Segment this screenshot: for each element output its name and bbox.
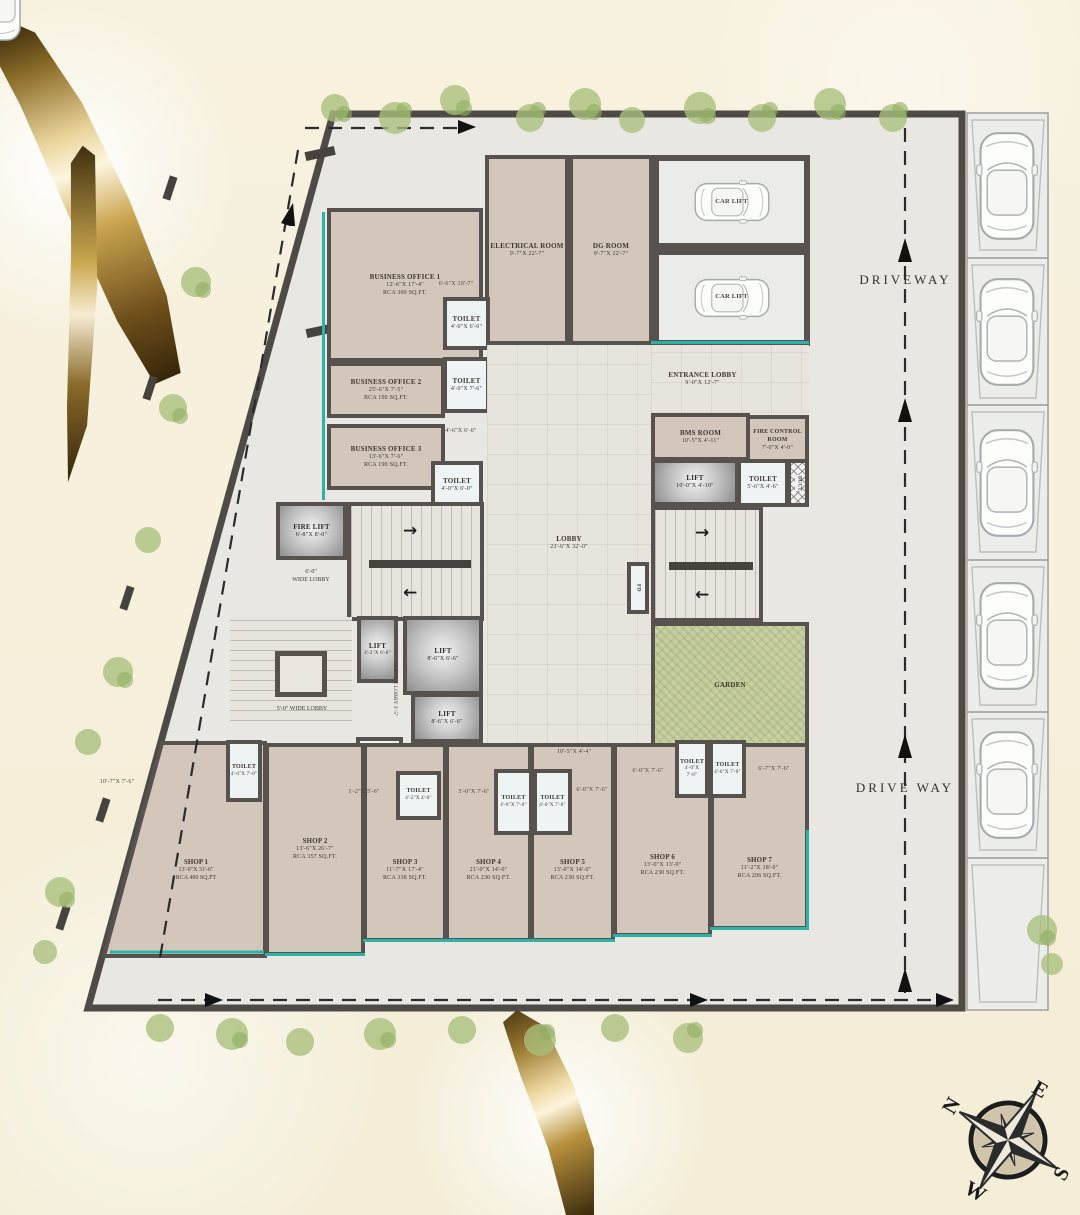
dim-label: 6'-0"X 7'-6" [622,768,674,774]
room-label: DG ROOM [593,242,629,251]
room-label: FIRE LIFT [293,523,330,532]
shop-name: SHOP 1 [140,858,252,867]
room-area: RCA 190 SQ.FT. [364,462,408,470]
room-shop-toilet-3: TOILET 4'-0"X 7'-0" [494,769,533,835]
wide-lobby-5-label: 5'-0" WIDE LOBBY [252,706,352,712]
stair-down-arrow: ← [695,584,709,606]
stair-landing-bar [669,562,753,570]
room-area: RCA 300 SQ.FT. [383,290,427,298]
shop-name: SHOP 2 [302,837,327,846]
room-label: BUSINESS OFFICE 3 [351,445,422,454]
room-dim: 9'-0"X 12'-7" [685,380,720,388]
room-dim: 13'-6"X 7'-6" [369,454,404,462]
room-label: BUSINESS OFFICE 2 [351,378,422,387]
room-label: LIFT [686,474,703,483]
storefront-s3 [363,939,447,942]
room-label: TOILET [406,788,430,796]
glazing-entrance-top [651,341,809,344]
shop-dim: 13'-6"X 26'-7" [296,846,334,854]
dim-label: 1'-2"X 5'-6" [336,789,392,795]
dim-label: 5'-0"X 7'-6" [448,789,500,795]
room-lift-right: LIFT 10'-0"X 4'-10" [651,459,739,506]
dim-label: 6'-7"X 7'-6" [748,766,800,772]
room-shop-toilet-2: TOILET 4'-2"X 4'-0" [396,771,441,820]
driveway-label-bottom: DRIVE WAY [849,780,961,796]
room-dim: 10'-0"X 4'-10" [676,483,714,491]
room-dim: 4'-0"X 7'-6" [451,386,482,394]
room-label: LIFT [369,642,386,651]
storefront-s5 [530,939,615,942]
room-dim: 4'-2"X 4'-0" [405,796,431,803]
room-dim: 4'-0"X 6'-0" [451,324,482,332]
room-label: LIFT [438,710,455,719]
room-shop-toilet-4: TOILET 4'-0"X 7'-0" [533,769,572,835]
shop-area: RCA 400 SQ.FT [140,875,252,883]
shop-dim: 11'-7"X 17'-4" [386,867,423,875]
wide-lobby-6-line1: 6'-0" [305,569,317,575]
shop-name: SHOP 3 [392,858,417,867]
room-dim: 4'-0"X 7'-0" [539,803,565,810]
room-dim: 9'-7"X 22'-7" [594,251,629,259]
shop-area: RCA 230 SQ.FT. [466,875,510,883]
room-label: TOILET [501,795,525,803]
stair-landing-bar [369,560,471,568]
room-dim: 8'-6"X 6'-6" [431,719,462,727]
shop-name: SHOP 7 [747,856,772,865]
room-dim: 4'-0"X 7'-0" [500,803,526,810]
wide-lobby-6-line2: WIDE LOBBY [292,577,330,583]
room-label: TOILET [443,477,471,486]
room-dim: 4'-0"X 6'-0" [441,486,472,494]
dim-label: 10'-5"X 4'-4" [543,749,605,755]
room-bms: BMS ROOM 10'-5"X 4'-11" [651,413,750,461]
parking-stalls [967,113,1048,1010]
room-fd-shaft: FD [627,562,649,614]
room-dim: 9'-7"X 22'-7" [510,251,545,259]
dim-label: 6'-6"X 10'-7" [425,281,487,287]
room-dim: 10'-5"X 4'-11" [682,438,719,446]
room-label: TOILET [232,764,256,772]
room-lift-b: LIFT 8'-6"X 6'-6" [411,693,483,743]
room-label: ENTRANCE LOBBY [668,371,736,380]
room-label: TOILET [749,475,777,484]
room-label: DUCT [795,475,802,492]
service-lobby-label: SERVICE LOBBY 3'-5" [392,642,398,737]
dim-label: 10'-7"X 7'-6" [86,779,148,785]
room-dim: 23'-6"X 32'-0" [550,544,588,552]
dim-label: 6'-0"X 7'-6" [566,787,618,793]
room-entrance-lobby: ENTRANCE LOBBY 9'-0"X 12'-7" [651,345,809,413]
room-car-lift-2: CAR LIFT [653,249,810,346]
room-duct: DUCT [787,459,809,507]
room-label: LIFT [434,647,451,656]
room-label: LOBBY [556,535,582,544]
room-fire-lift: FIRE LIFT 6'-8"X 8'-0" [276,502,347,560]
room-garden: GARDEN [651,622,809,750]
glazing-office-left [322,212,325,500]
wide-lobby-6-label: 6'-0" WIDE LOBBY [278,568,344,585]
staircase-right: → ← [651,506,763,622]
room-toilet-office2: TOILET 4'-0"X 7'-6" [443,357,490,413]
room-business-office-3: BUSINESS OFFICE 3 13'-6"X 7'-6" RCA 190 … [327,424,445,490]
room-dim: 4'-6"X 7'-0" [714,770,740,777]
room-dim: 4'-0"X 7'-0" [231,772,257,779]
room-lift-a: LIFT 8'-6"X 6'-6" [403,616,483,695]
room-dim: 12'-6"X 17'-4" [386,282,424,290]
room-label: CAR LIFT [715,198,747,206]
room-business-office-2: BUSINESS OFFICE 2 25'-6"X 7'-5" RCA 190 … [327,362,445,418]
compass-s: S [1048,1162,1075,1184]
room-toilet-office1: TOILET 4'-0"X 6'-0" [443,297,490,350]
dim-label: 4'-6"X 6'-0" [432,428,490,434]
room-label: CAR LIFT [715,293,747,301]
room-dim: 5'-6"X 4'-6" [747,484,778,492]
room-dim: 6'-8"X 8'-0" [296,532,327,540]
storefront-s2 [265,953,365,956]
storefront-s7 [710,927,809,930]
room-label: TOILET [540,795,564,803]
shop-dim: 13'-0"X 14'-0" [554,867,592,875]
room-label: FIRE CONTROL ROOM [750,429,805,445]
room-label: FD [634,584,641,592]
stair-up-arrow: → [695,522,709,544]
shop-area: RCA 338 SQ.FT. [383,875,427,883]
compass-rose: N E S W [932,1064,1080,1215]
room-label: ELECTRICAL ROOM [490,242,563,251]
room-car-lift-1: CAR LIFT [653,155,810,249]
room-label: TOILET [453,315,481,324]
room-area: RCA 190 SQ.FT. [364,395,408,403]
shop-dim: 13'-9"X 31'-6" [140,867,252,875]
shop-name: SHOP 4 [476,858,501,867]
room-dim: 25'-6"X 7'-5" [369,387,404,395]
room-label: TOILET [453,377,481,386]
room-dim: 4'-2"X 6'-6" [364,651,390,658]
room-shop-toilet-6: TOILET 4'-6"X 7'-0" [709,740,746,798]
room-dg: DG ROOM 9'-7"X 22'-7" [569,155,653,345]
driveway-label-top: DRIVEWAY [853,272,958,288]
room-dim: 4'-0"X 7'-0" [679,766,705,779]
room-label: TOILET [715,762,739,770]
room-shop-toilet-5: TOILET 4'-0"X 7'-0" [675,740,709,798]
shop-area: RCA 357 SQ.FT. [293,854,337,862]
room-label: TOILET [680,759,704,767]
shop-name: SHOP 5 [560,858,585,867]
shop-name: SHOP 6 [650,853,675,862]
shop-dim: 13'-0"X 13'-0" [644,862,682,870]
room-dim: 8'-6"X 6'-6" [427,656,458,664]
room-toilet-right: TOILET 5'-6"X 4'-6" [737,459,789,507]
shop-area: RCA 230 SQ.FT. [640,870,684,878]
shop-dim: 11'-2"X 18'-0" [741,865,778,873]
room-dim: 7'-0"X 4'-0" [762,445,793,453]
storefront-s4 [445,939,532,942]
room-label: BMS ROOM [680,429,721,438]
room-shop-1-label: SHOP 1 13'-9"X 31'-6" RCA 400 SQ.FT [140,858,252,883]
room-shop-toilet-1: TOILET 4'-0"X 7'-0" [226,740,262,802]
shop-dim: 21'-0"X 14'-0" [470,867,508,875]
room-shop-2: SHOP 2 13'-6"X 26'-7" RCA 357 SQ.FT. [265,743,365,956]
stair-down-arrow: ← [403,582,417,604]
stair-up-arrow: → [403,520,417,542]
storefront-s6 [613,934,712,937]
shop-area: RCA 206 SQ.FT. [737,873,781,881]
room-label: GARDEN [714,681,746,690]
room-lobby: LOBBY 23'-6"X 32'-0" [487,345,651,755]
staircase-left: → ← [347,502,484,621]
room-electrical: ELECTRICAL ROOM 9'-7"X 22'-7" [485,155,569,345]
car-top-view [0,0,23,40]
shop-area: RCA 230 SQ.FT. [550,875,594,883]
stair-landing [275,651,327,697]
storefront-s7-side [806,830,809,928]
